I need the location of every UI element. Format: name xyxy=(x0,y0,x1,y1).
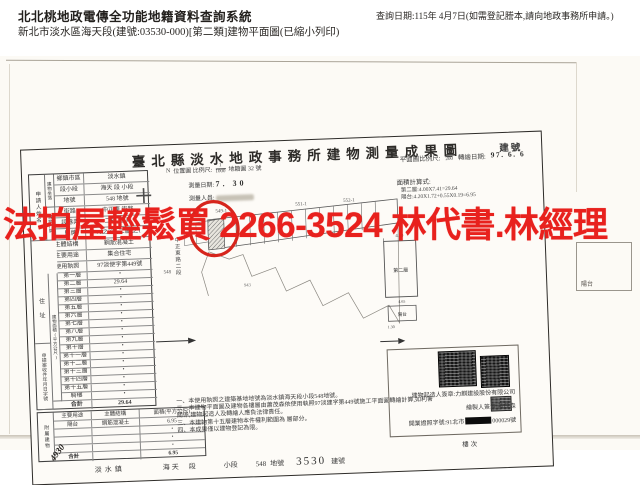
map-scale-fraction: 1 1000 xyxy=(215,163,225,174)
paper-edge-right xyxy=(576,62,577,192)
license-row: 開業證照字號:91北市000029號 xyxy=(408,415,516,428)
license-suffix: 000029號 xyxy=(492,418,516,425)
plan-dim-bottom: 1.30 xyxy=(388,324,395,329)
balcony-plan-box: 陽台 xyxy=(576,242,632,291)
balcony-plan-label: 陽台 xyxy=(581,279,593,288)
row-label: 段小段 xyxy=(54,184,84,195)
attached-total-spacer xyxy=(93,450,141,461)
floor-label: 第七層 xyxy=(59,320,89,328)
map-arrow xyxy=(156,330,405,353)
plan-scale-denominator: 200 xyxy=(445,157,453,162)
attached-use xyxy=(54,428,92,436)
paper-edge-left xyxy=(9,64,10,434)
footer-lot: 548 xyxy=(256,460,267,468)
footer-section-label: 段 xyxy=(189,461,196,471)
floor-label: 第十一層 xyxy=(61,352,91,360)
plan-balcony-label: 陽台 xyxy=(398,311,408,318)
area-calc-label: 面積計算式: xyxy=(396,176,431,187)
plan-scale-label: 平面圖比例尺: xyxy=(399,152,440,163)
floor-rows: 第一層 ・ 第二層 29.64 第三層 ・ xyxy=(58,270,158,401)
drafter-value: 蕭茂森 xyxy=(498,404,516,411)
floor-label: 第一層 xyxy=(58,272,88,280)
survey-form: 臺北縣淡水地政事務所建物測量成果圖 建號 申請人姓名 住 址 申請案收件年月日字… xyxy=(20,131,554,485)
paper-edge-top xyxy=(6,60,576,63)
personal-seal-stamp xyxy=(480,355,510,388)
floor-label: 第十五層 xyxy=(62,384,92,392)
row-label: 主要用途 xyxy=(57,250,87,261)
plan-floor-label: 第二層 xyxy=(393,267,408,275)
signature-block: 建物起造人簽章:力麒建設股份有限公司 繪製人簽章:蕭茂森 開業證照字號:91北市… xyxy=(387,345,522,438)
attached-use: 陽台 xyxy=(54,420,92,428)
location-map-caption: N 位置圖 比例尺: 1 1000 地籍圖 32 號 xyxy=(166,162,262,176)
license-prefix: 91北市 xyxy=(446,420,464,427)
drafter-signature-row: 繪製人簽章:蕭茂森 xyxy=(466,401,516,412)
attached-header-use: 主要用途 xyxy=(54,411,92,420)
company-seal-stamp xyxy=(438,350,477,387)
row-label: 使用執照 xyxy=(57,261,87,272)
query-date: 查詢日期:115年 4月7日(如需登記謄本,請向地政事務所申請。) xyxy=(376,9,614,22)
system-title: 北北桃地政電傳全功能地籍資料查詢系統 xyxy=(18,6,252,25)
lot-main-label: 548 xyxy=(164,270,172,275)
floor-label: 第九層 xyxy=(60,336,90,344)
redaction-box xyxy=(465,417,491,425)
floor-label: 第六層 xyxy=(59,312,89,320)
floor-label: 第十二層 xyxy=(61,360,91,368)
plan-scale-fraction: 1 200 xyxy=(445,151,453,162)
builder-label: 建物起造人簽章: xyxy=(412,392,456,400)
footer-building-no: 3530 xyxy=(296,455,326,468)
survey-date-label: 測量日期: xyxy=(188,183,214,190)
floor-label: 第五層 xyxy=(59,304,89,312)
draw-date-value: 97. 6. 6 xyxy=(490,149,525,159)
ad-watermark-text: 法拍屋輕鬆買 2266-3524 林代書.林經理 xyxy=(3,197,640,248)
scanned-document: 陽台 臺北縣淡水地政事務所建物測量成果圖 建號 申請人姓名 住 址 申請案收件年… xyxy=(0,56,640,450)
floor-seq-label: 樓次 xyxy=(462,438,479,449)
floor-label: 第四層 xyxy=(58,296,88,304)
map-sheet-label: 地籍圖 32 號 xyxy=(228,163,261,173)
floor-label: 第十四層 xyxy=(61,376,91,384)
footer-subsection: 小段 xyxy=(224,460,238,471)
draw-date-label: 轉繪日期: xyxy=(458,150,486,161)
footer-lot-label: 地號 xyxy=(270,458,284,469)
lot-far-label: 943 xyxy=(244,282,252,287)
footer-town: 淡水鎮 xyxy=(95,464,125,475)
drafter-label: 繪製人簽章: xyxy=(466,404,498,411)
survey-date-value: 7. 30 xyxy=(215,178,246,188)
north-label: N xyxy=(166,168,171,174)
document-subtitle: 新北市淡水區海天段(建號:03530-000)[第二類]建物平面圖(已縮小列印) xyxy=(18,24,339,39)
floor-label: 騎樓 xyxy=(62,392,92,400)
plan-dim-middle: 4.65 xyxy=(398,299,405,304)
scale-denominator: 1000 xyxy=(215,169,225,174)
row-label: 鄉鎮市區 xyxy=(54,173,84,184)
footer-building-no-label: 建號 xyxy=(331,456,345,467)
license-label: 開業證照字號: xyxy=(409,420,447,427)
floor-label: 第十三層 xyxy=(61,368,91,376)
floor-label: 第十層 xyxy=(60,344,90,352)
floor-label: 第八層 xyxy=(60,328,90,336)
floor-label: 第二層 xyxy=(58,280,88,288)
floor-label: 第三層 xyxy=(58,288,88,296)
total-label: 合計 xyxy=(62,400,92,410)
map-scale-label: 位置圖 比例尺: xyxy=(173,165,212,175)
footer-section: 海天 xyxy=(163,462,181,473)
survey-date-line: 測量日期: 7. 30 xyxy=(188,178,246,189)
